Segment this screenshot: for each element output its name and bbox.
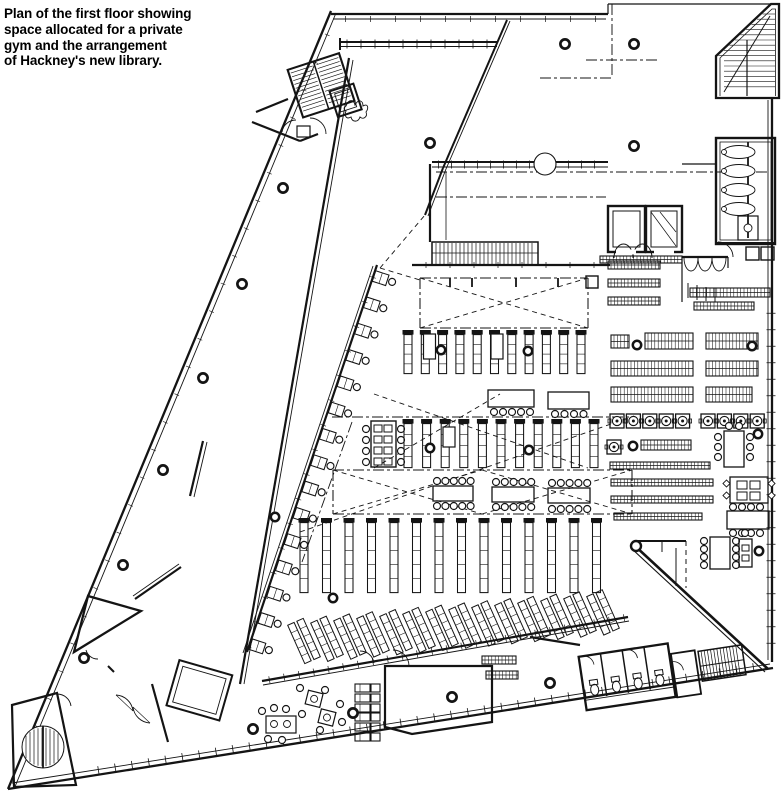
gym-wing — [108, 58, 377, 684]
stair-northeast — [716, 4, 779, 98]
bookstacks-upper — [403, 330, 587, 374]
floor-plan-drawing — [0, 0, 782, 795]
north-walls — [340, 20, 716, 268]
reading-tables-lower — [433, 478, 591, 513]
bookstacks-middle — [363, 419, 600, 468]
cafe-area — [259, 614, 630, 743]
toilets-northeast — [716, 138, 776, 260]
building-outline — [8, 4, 779, 789]
escalator — [430, 164, 538, 265]
bookstacks-lower — [271, 513, 602, 602]
stair-northwest — [252, 53, 368, 141]
lifts — [600, 206, 682, 263]
entrance-east — [682, 257, 728, 302]
stair-southwest-spiral — [12, 693, 76, 787]
floor-plan-page: Plan of the first floor showing space al… — [0, 0, 782, 795]
study-desks-west — [249, 271, 397, 657]
toilets-southeast — [579, 643, 701, 710]
study-carrels — [605, 414, 766, 454]
reading-tables-mid — [488, 390, 589, 418]
rooms-southwest — [74, 596, 232, 742]
